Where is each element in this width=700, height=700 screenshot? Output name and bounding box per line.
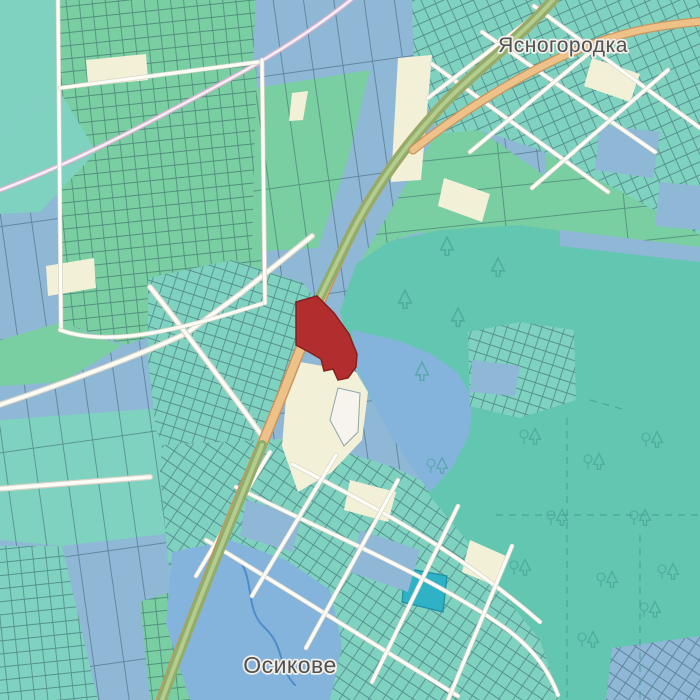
place-label-osykove: Осикове bbox=[243, 652, 337, 678]
map-viewport[interactable]: ЯсногородкаОсикове bbox=[0, 0, 700, 700]
patch-blue-right-2 bbox=[655, 182, 700, 230]
map-canvas[interactable]: ЯсногородкаОсикове bbox=[0, 0, 700, 700]
patch-blue-in-forest-grid bbox=[470, 360, 520, 396]
place-label-yasnohorodka: Ясногородка bbox=[498, 34, 628, 57]
